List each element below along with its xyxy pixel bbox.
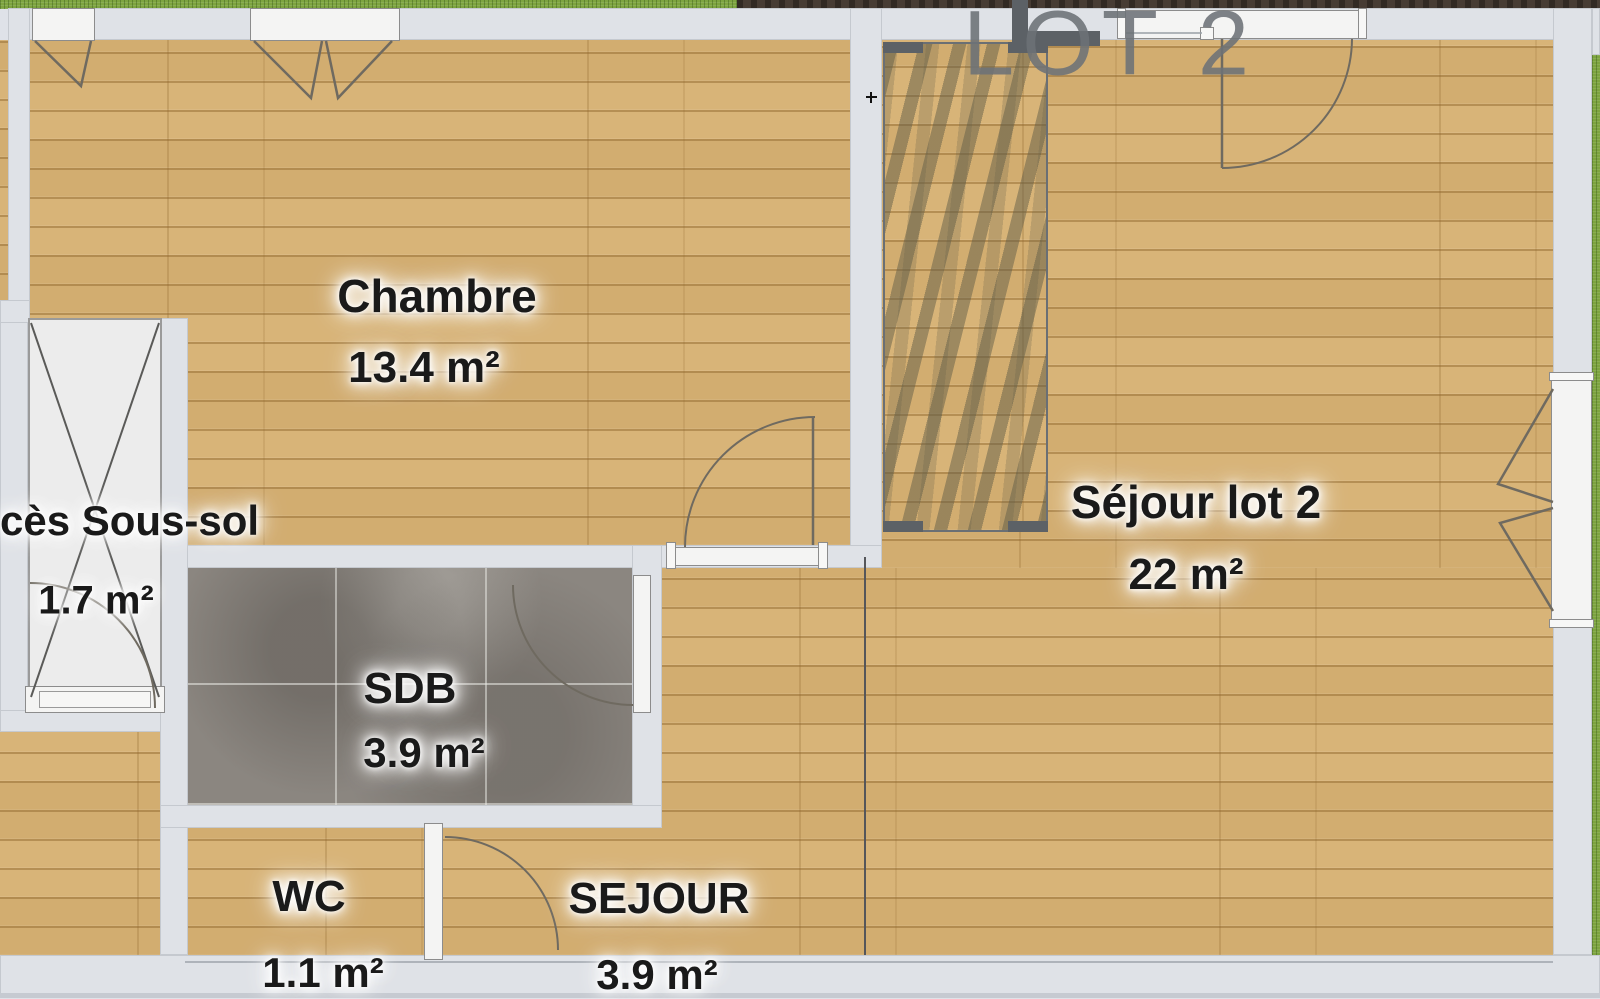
wall-left-upper [8, 8, 30, 322]
wall-sdb-bottom [160, 805, 662, 828]
wall-left-stub [0, 300, 30, 324]
hatch-corner-tab-bl [883, 521, 923, 532]
hatch-corner-tab-br [1008, 521, 1048, 532]
grass-strip-right [1592, 55, 1600, 998]
room-area-acces-sous-sol: 1.7 m² [38, 579, 154, 624]
room-label-sejour-lot2: Séjour lot 2 [1071, 475, 1321, 529]
room-label-acces-sous-sol: cès Sous-sol [0, 497, 259, 545]
wall-below-stairs [0, 710, 162, 732]
wall-chambre-right [850, 8, 882, 568]
window-sejour-cap-bottom [1549, 619, 1594, 628]
room-label-chambre: Chambre [337, 269, 536, 323]
room-area-wc: 1.1 m² [262, 949, 383, 997]
door-wc[interactable] [424, 823, 443, 960]
room-area-sejour: 3.9 m² [596, 951, 717, 999]
hatch-corner-tab-tl [883, 42, 923, 53]
lot-title: LOT 2 [963, 0, 1257, 97]
window-chambre-left[interactable] [32, 8, 95, 41]
room-area-sdb: 3.9 m² [363, 729, 484, 777]
wall-sdb-left [160, 318, 188, 955]
floor-sejour-lot2-lower[interactable] [662, 568, 1553, 955]
window-sejour-cap-top [1549, 372, 1594, 381]
door-jamb-chambre-right [818, 542, 828, 569]
door-jamb-chambre-left [666, 542, 676, 569]
floor-entry-corridor[interactable] [0, 730, 160, 955]
floor-neighbor-sliver [0, 40, 8, 302]
wall-right-corner [1592, 8, 1600, 55]
room-area-sejour-lot2: 22 m² [1129, 550, 1244, 600]
window-chambre-right[interactable] [250, 8, 400, 41]
basement-access-threshold-inner [39, 691, 151, 708]
hatched-zone[interactable] [883, 42, 1048, 532]
room-label-wc: WC [272, 872, 345, 922]
wall-bottom-edge-line [185, 961, 1553, 963]
door-jamb-sejour-top-right [1358, 8, 1367, 39]
window-sejour-right[interactable] [1551, 378, 1592, 622]
door-sdb[interactable] [633, 575, 651, 713]
room-area-chambre: 13.4 m² [348, 343, 500, 393]
room-label-sdb: SDB [364, 664, 457, 714]
hatch-pattern [885, 44, 1046, 530]
room-label-sejour: SEJOUR [569, 874, 750, 924]
cursor-cross-v [870, 92, 872, 103]
wall-bottom-shadow [0, 993, 1600, 998]
floor-plan-canvas: LOT 2 Chambre 13.4 m² Séjour lot 2 22 m²… [0, 0, 1600, 998]
door-opening-chambre[interactable] [674, 547, 820, 566]
